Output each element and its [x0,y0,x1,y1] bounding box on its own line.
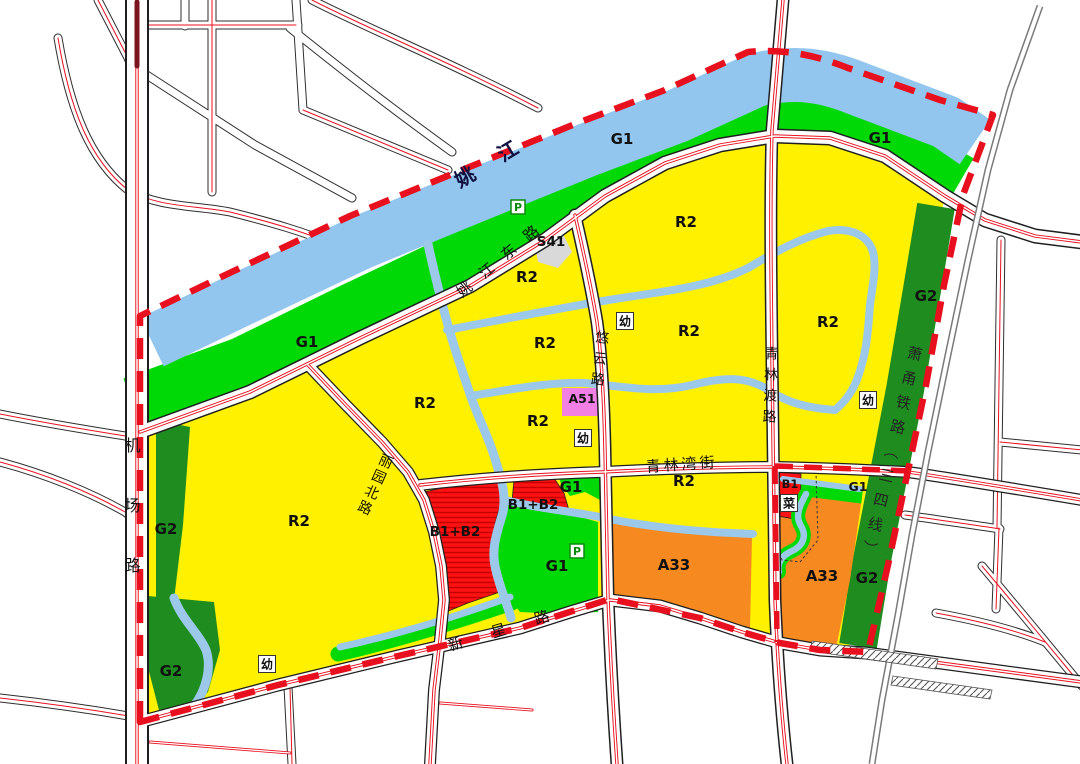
kindergarten-badge-char: 幼 [261,657,273,672]
market-badge-char: 菜 [782,496,795,511]
zone-label-r2: R2 [516,268,538,286]
zone-label-b1b2: B1+B2 [508,497,559,513]
zone-label-a51: A51 [568,391,595,406]
planning-map-page: R2 R2 R2 R2 R2 R2 R2 R2 R2 G1 G1 G1 G1 G… [0,0,1080,764]
kindergarten-badge-char: 幼 [577,431,589,446]
kindergarten-badge-char: 幼 [862,393,874,408]
zone-label-r2: R2 [414,394,436,412]
kindergarten-badge: 幼 [259,656,276,673]
zone-label-r2: R2 [675,213,697,231]
parking-badge-char: P [514,201,522,214]
zone-label-g2: G2 [155,520,178,538]
kindergarten-badge: 幼 [860,392,877,409]
zone-label-r2: R2 [673,472,695,490]
parking-badge-char: P [573,545,581,558]
kindergarten-badge: 幼 [575,430,592,447]
zone-label-r2: R2 [678,322,700,340]
zone-label-r2: R2 [817,313,839,331]
zone-label-g2: G2 [915,287,938,305]
zone-label-a33: A33 [658,556,690,574]
parking-badge: P [570,544,584,558]
zone-label-g2: G2 [160,662,183,680]
zone-label-g1: G1 [296,333,319,351]
zone-label-g2: G2 [856,569,879,587]
parking-badge: P [511,200,525,214]
zone-label-b1: B1 [782,477,799,491]
zone-label-r2: R2 [527,412,549,430]
zone-label-g1: G1 [611,130,634,148]
zone-label-g1: G1 [546,557,569,575]
planning-map-canvas: R2 R2 R2 R2 R2 R2 R2 R2 R2 G1 G1 G1 G1 G… [0,0,1080,764]
zone-label-r2: R2 [534,334,556,352]
road-label-jichang: 机场路 [122,437,141,617]
zone-label-g1: G1 [869,129,892,147]
zone-label-r2: R2 [288,512,310,530]
zone-label-g1: G1 [560,478,583,496]
road-label-qinglindu: 青林渡路 [760,346,779,431]
zone-label-b1b2: B1+B2 [430,524,481,540]
kindergarten-badge: 幼 [617,313,634,330]
market-badge: 菜 [781,495,798,512]
zone-label-g1: G1 [849,479,868,494]
kindergarten-badge-char: 幼 [619,314,631,329]
zone-label-a33: A33 [806,567,838,585]
